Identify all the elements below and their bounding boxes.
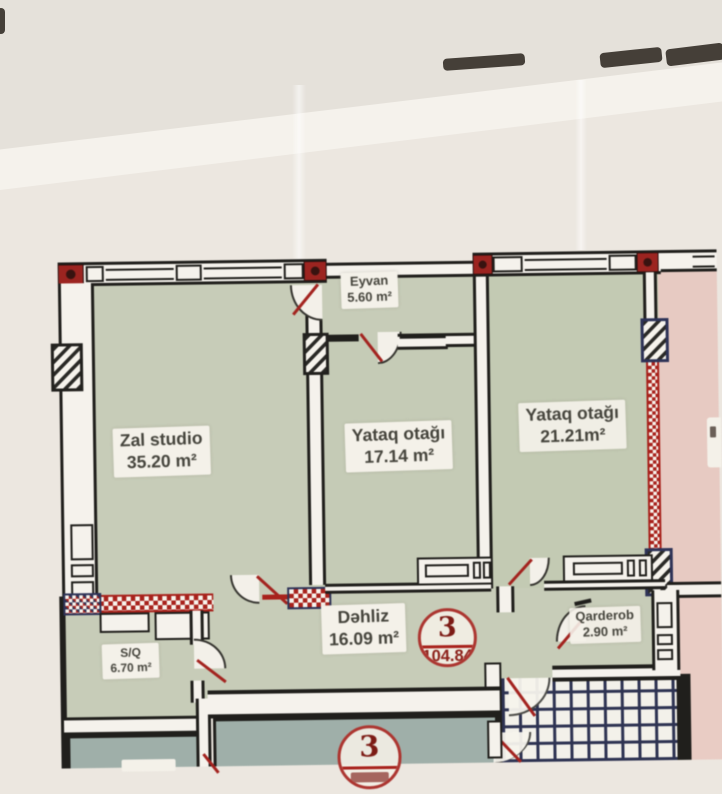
- room-label-qarderob: Qarderob 2.90 m²: [569, 606, 641, 644]
- window-glass-lines: [400, 336, 446, 349]
- column-hatched-navy: [640, 318, 669, 362]
- room-name: Yataq otağı: [351, 422, 445, 447]
- window-glass-lines: [693, 255, 715, 267]
- wall-segment: [446, 333, 476, 347]
- room-name: Eyvan: [346, 272, 391, 290]
- window: [104, 264, 176, 283]
- column-hatched: [51, 343, 84, 391]
- shaft-box: [70, 524, 94, 560]
- room-name: Zal studio: [120, 428, 203, 453]
- floor-plan: Zal studio 35.20 m² Eyvan 5.60 m² Yataq …: [0, 0, 722, 769]
- room-label-eyvan: Eyvan 5.60 m²: [340, 271, 398, 308]
- room-label-yataq-2: Yataq otağı 21.21m²: [518, 400, 627, 452]
- bottom-label-fragment: [122, 759, 176, 772]
- wall-corner-block: [304, 261, 327, 281]
- room-area: 6.70 m²: [110, 660, 152, 676]
- label-fragment-mark: [710, 426, 716, 437]
- window-mullion: [86, 266, 104, 282]
- room-label-yataq-1: Yataq otağı 17.14 m²: [344, 420, 453, 472]
- wall-segment: [496, 586, 514, 612]
- room-name: Yataq otağı: [525, 402, 619, 427]
- room-name: S/Q: [110, 645, 152, 661]
- wall-dehliz-bottom: [208, 686, 500, 718]
- wardrobe: [417, 557, 493, 586]
- wall-corner-block: [473, 254, 493, 274]
- wall-sq-bottom: [64, 715, 208, 735]
- shaft-box: [71, 564, 94, 577]
- wardrobe: [563, 554, 653, 582]
- wardrobe-inner: [483, 562, 491, 579]
- wall-segment: [329, 334, 359, 341]
- room-area: 16.09 m²: [329, 627, 400, 651]
- wardrobe-inner: [639, 559, 647, 576]
- window-eyvan: [398, 333, 448, 350]
- wall-corner-block: [637, 252, 659, 272]
- wardrobe-inner: [473, 562, 481, 579]
- room-area: 5.60 m²: [347, 289, 392, 307]
- unit-total-area: 104.84: [421, 647, 474, 667]
- window-mullion: [493, 256, 523, 272]
- room-label-sq: S/Q 6.70 m²: [102, 643, 160, 680]
- shaft-box: [657, 634, 673, 645]
- party-wall-checker: [646, 362, 662, 552]
- lower-unit-number-badge: 3: [337, 725, 402, 790]
- window-mullion: [609, 254, 637, 270]
- room-area: 2.90 m²: [576, 623, 635, 641]
- unit-number-badge: 3 104.84: [417, 608, 477, 668]
- neighbor-label-fragment: [707, 417, 722, 467]
- wall-tab: [487, 720, 503, 758]
- shaft-box: [657, 649, 673, 660]
- room-area: 35.20 m²: [120, 450, 203, 475]
- photo-of-floor-plan: Zal studio 35.20 m² Eyvan 5.60 m² Yataq …: [0, 0, 722, 768]
- window-mullion: [176, 265, 202, 281]
- window: [691, 252, 717, 268]
- window: [523, 254, 609, 273]
- room-area: 21.21m²: [526, 424, 620, 449]
- unit-number: 3: [420, 611, 473, 645]
- wall-checker-dense: [63, 593, 101, 616]
- wardrobe-inner: [425, 564, 469, 578]
- exterior-wall-top-yataq2: [472, 250, 660, 277]
- wall-tab: [484, 662, 501, 688]
- room-label-dehliz: Dəhliz 16.09 m²: [321, 603, 407, 655]
- room-area: 17.14 m²: [352, 444, 446, 469]
- column-hatched: [303, 333, 330, 375]
- room-name: Qarderob: [575, 607, 634, 625]
- window-glass-lines: [525, 258, 607, 271]
- unit-number: 3: [340, 728, 399, 766]
- room-name: Dəhliz: [328, 605, 399, 629]
- shaft-box: [99, 612, 149, 633]
- exterior-wall-top-zal: [58, 259, 327, 287]
- badge-clipped-text: [351, 772, 389, 783]
- window: [202, 262, 284, 281]
- window-mullion: [284, 263, 304, 279]
- wardrobe-inner: [627, 560, 635, 577]
- shaft-box: [656, 602, 672, 628]
- wardrobe-inner: [573, 562, 623, 576]
- wall-segment: [676, 674, 691, 760]
- window-glass-lines: [106, 268, 174, 281]
- exterior-wall-top-neighbor: [660, 249, 716, 272]
- party-wall-window: [643, 272, 658, 322]
- window-glass-lines: [204, 266, 282, 279]
- room-label-zal-studio: Zal studio 35.20 m²: [112, 426, 210, 478]
- wall-corner-block: [58, 264, 84, 284]
- wall-red-line: [262, 594, 290, 599]
